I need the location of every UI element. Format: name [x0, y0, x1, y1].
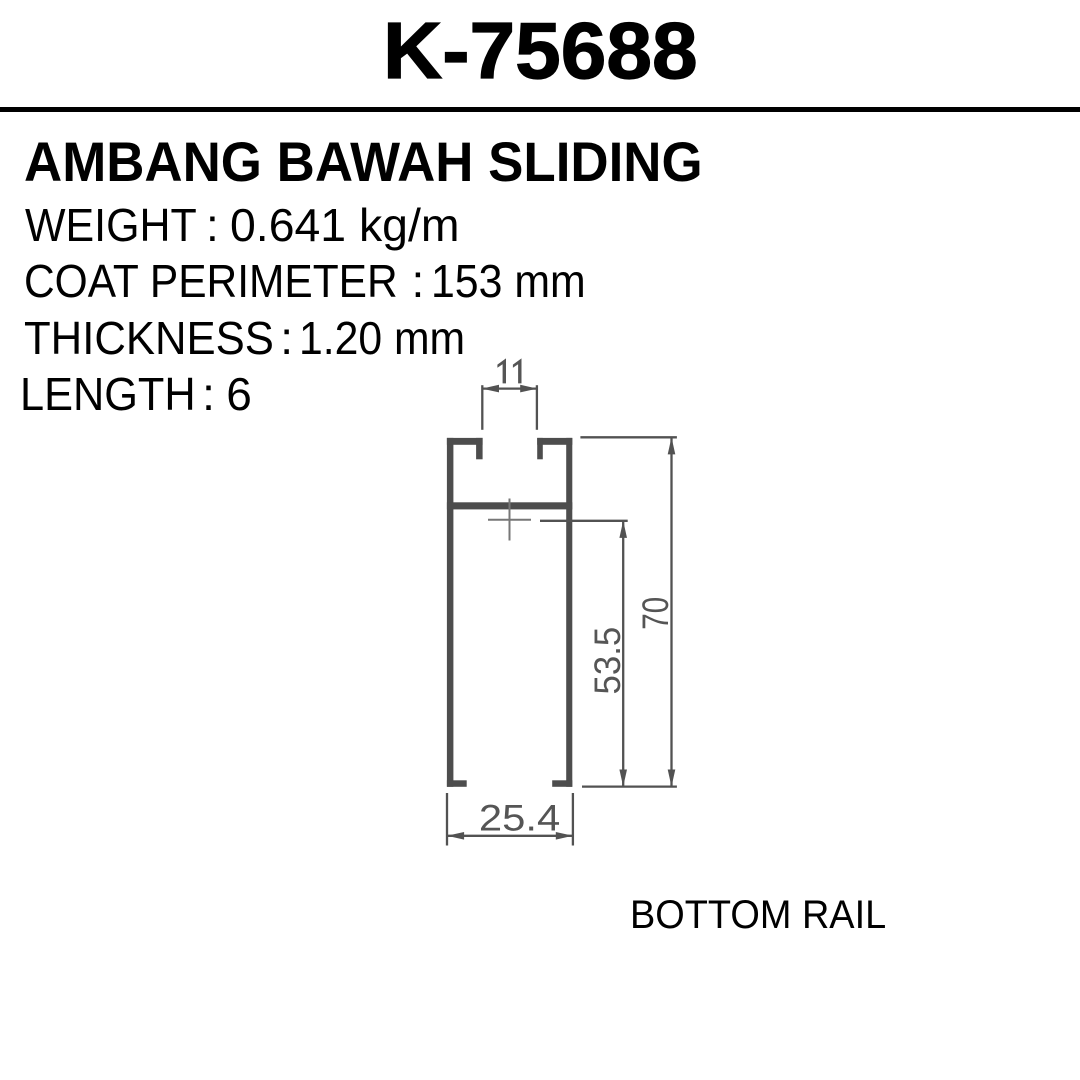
svg-text:70: 70	[635, 597, 676, 630]
svg-text:53.5: 53.5	[587, 627, 628, 695]
svg-text:25.4: 25.4	[479, 797, 560, 838]
